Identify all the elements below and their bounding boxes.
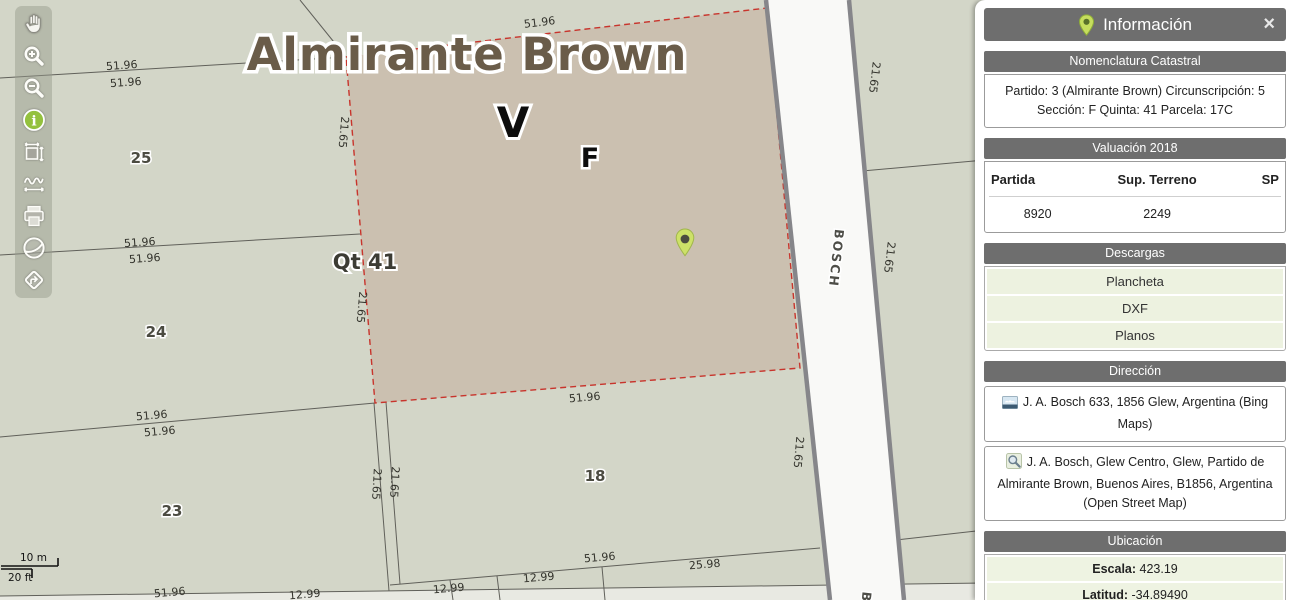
measure-area-icon <box>21 139 47 165</box>
section-letter-label: F <box>581 143 599 174</box>
measure-length-button[interactable] <box>19 170 48 198</box>
dimension-label: 51.96 <box>106 58 138 73</box>
section-header-valuacion: Valuación 2018 <box>984 138 1286 159</box>
valuacion-table: Partida Sup. Terreno SP 8920 2249 <box>984 161 1286 233</box>
scale-value: 423.19 <box>1140 562 1178 576</box>
valuacion-col-sp: SP <box>1228 164 1281 198</box>
section-header-direccion: Dirección <box>984 361 1286 382</box>
pan-tool-button[interactable] <box>19 10 48 38</box>
scale-label: Escala: <box>1092 562 1136 576</box>
street-name-label: B <box>858 591 874 600</box>
district-title-label: Almirante Brown <box>247 28 688 81</box>
directions-icon <box>21 267 47 293</box>
latitude-value: -34.89490 <box>1132 588 1188 600</box>
scale-imperial-label: 20 ft <box>8 572 32 584</box>
dimension-label: 12.99 <box>288 587 321 600</box>
info-panel: Información × Nomenclatura Catastral Par… <box>975 0 1295 600</box>
dimension-label: 51.96 <box>129 251 161 266</box>
dimension-label: 51.96 <box>583 550 616 566</box>
zoom-in-button[interactable] <box>19 42 48 70</box>
zoom-out-button[interactable] <box>19 74 48 102</box>
valuacion-val-terreno: 2249 <box>1086 197 1228 228</box>
dimension-label: 51.96 <box>124 235 156 250</box>
descargas-box: Plancheta DXF Planos <box>984 266 1286 351</box>
info-tool-button[interactable]: i <box>19 106 48 134</box>
download-plancheta-button[interactable]: Plancheta <box>987 269 1283 296</box>
address-bing-link[interactable]: J. A. Bosch 633, 1856 Glew, Argentina (B… <box>984 386 1286 442</box>
dimension-label: 21.65 <box>369 468 384 500</box>
download-dxf-button[interactable]: DXF <box>987 296 1283 323</box>
pin-icon <box>1078 14 1095 36</box>
dimension-label: 21.65 <box>354 291 370 324</box>
bing-maps-icon <box>1002 396 1018 415</box>
latitude-row: Latitud: -34.89490 <box>987 583 1283 600</box>
google-earth-button[interactable] <box>19 234 48 262</box>
svg-text:i: i <box>31 114 36 130</box>
valuacion-val-sp <box>1228 197 1281 228</box>
ubicacion-box: Escala: 423.19 Latitud: -34.89490 Longit… <box>984 554 1286 600</box>
section-letter-label: V <box>497 98 530 147</box>
download-planos-button[interactable]: Planos <box>987 323 1283 348</box>
print-button[interactable] <box>19 202 48 230</box>
dimension-label: 21.65 <box>336 116 352 149</box>
parcel-number-label: 24 <box>146 323 167 341</box>
dimension-label: 21.65 <box>387 466 402 498</box>
parcel-number-label: 25 <box>131 149 152 167</box>
dimension-label: 51.96 <box>135 408 168 424</box>
dimension-label: 51.96 <box>110 75 142 90</box>
latitude-label: Latitud: <box>1082 588 1128 600</box>
info-panel-header: Información × <box>984 8 1286 41</box>
section-header-descargas: Descargas <box>984 243 1286 264</box>
print-icon <box>21 203 47 229</box>
close-button[interactable]: × <box>1263 12 1275 36</box>
hand-icon <box>21 11 47 37</box>
info-icon: i <box>21 107 47 133</box>
dimension-label: 21.65 <box>791 436 807 469</box>
measure-area-button[interactable] <box>19 138 48 166</box>
valuacion-val-partida: 8920 <box>989 197 1086 228</box>
map-canvas[interactable]: Almirante BrownVFQt 4125242318BOSCHB51.9… <box>0 0 985 600</box>
dimension-label: 51.96 <box>153 585 186 600</box>
address-osm-link[interactable]: J. A. Bosch, Glew Centro, Glew, Partido … <box>984 446 1286 521</box>
dimension-label: 12.99 <box>522 570 555 586</box>
valuacion-col-terreno: Sup. Terreno <box>1086 164 1228 198</box>
section-header-nomenclatura: Nomenclatura Catastral <box>984 51 1286 72</box>
parcel-number-label: 23 <box>162 502 183 520</box>
valuacion-col-partida: Partida <box>989 164 1086 198</box>
directions-button[interactable] <box>19 266 48 294</box>
nomenclatura-text: Partido: 3 (Almirante Brown) Circunscrip… <box>984 74 1286 128</box>
dimension-label: 51.96 <box>568 390 601 406</box>
dimension-label: 12.99 <box>432 581 465 597</box>
openstreetmap-icon <box>1006 453 1022 475</box>
dimension-label: 25.98 <box>688 557 721 573</box>
zoom-out-icon <box>21 75 47 101</box>
map-toolbar: i <box>15 6 52 298</box>
cadastral-map-app: Almirante BrownVFQt 4125242318BOSCHB51.9… <box>0 0 1295 600</box>
scale-row: Escala: 423.19 <box>987 557 1283 583</box>
dimension-label: 51.96 <box>143 424 176 440</box>
section-header-ubicacion: Ubicación <box>984 531 1286 552</box>
panel-title: Información <box>1103 15 1192 35</box>
scale-metric-label: 10 m <box>20 552 47 564</box>
parcel-number-label: 18 <box>585 467 606 485</box>
quinta-label: Qt 41 <box>333 250 397 274</box>
measure-length-icon <box>21 171 47 197</box>
google-earth-icon <box>21 235 47 261</box>
address-bing-text: J. A. Bosch 633, 1856 Glew, Argentina (B… <box>1023 395 1268 431</box>
zoom-in-icon <box>21 43 47 69</box>
address-osm-text: J. A. Bosch, Glew Centro, Glew, Partido … <box>997 455 1272 511</box>
